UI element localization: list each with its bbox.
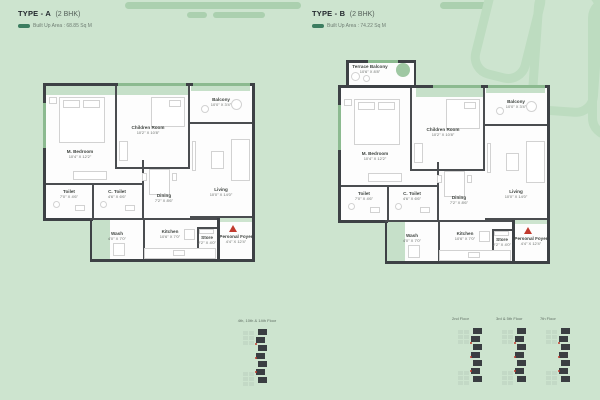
room-label-c-toilet: C. Toilet4'6" X 6'6" [390,191,434,202]
room-label-kitchen: Kitchen10'6" X 7'0" [145,229,195,240]
deco-bar [187,12,207,18]
type-a-title-row: TYPE - A (2 BHK) [18,3,92,21]
room-label-children-room: Children Room10'2" X 10'8" [119,125,177,136]
wc-icon [53,201,60,208]
room-label-balcony: Balcony10'0" X 3'4" [488,99,544,110]
room-label-terrace-balcony: Terrace Balcony10'6" X 8'8" [348,64,392,75]
area-dash-icon [18,24,30,28]
tower-diagram [243,326,271,394]
type-b-title-row: TYPE - B (2 BHK) [312,3,386,21]
keyplan-3: 3rd & 5th Floor [496,316,536,398]
type-a-config: (2 BHK) [55,11,80,18]
sink-icon [173,250,185,256]
planter-icon [396,63,410,77]
keyplan-1: 4th, 10th & 14th Floor [228,318,286,398]
sink-icon [468,252,480,258]
room-label-wash: Wash4'0" X 7'0" [94,231,140,242]
washer-icon [113,243,125,256]
basin-icon [75,205,85,211]
room-label-children-room: Children Room10'2" X 10'8" [414,127,472,138]
floor-plan-type-a: M. Bedroom10'4" X 12'2" Children Room10'… [43,83,257,265]
keyplan-2: 2nd Floor [452,316,492,398]
type-a-title: TYPE - A [18,9,51,18]
chair-icon [363,75,370,82]
type-a-header: TYPE - A (2 BHK) Built Up Area : 68.85 S… [18,3,92,29]
room-label-living: Living10'0" X 14'0" [490,189,542,200]
wc-icon [100,201,107,208]
wardrobe-icon [73,171,107,180]
tower-diagram [546,325,574,393]
entry-arrow-icon [524,227,532,234]
dining-table-icon [149,169,170,195]
wardrobe-icon [368,173,402,182]
washer-icon [408,245,420,258]
basin-icon [420,207,430,213]
deco-bar [125,2,301,9]
room-label-dining: Dining7'2" X 8'6" [436,195,482,206]
room-label-personal-foyer: Personal Foyer4'4" X 12'4" [513,236,549,247]
room-label-kitchen: Kitchen10'6" X 7'0" [440,231,490,242]
deco-bar [440,2,488,9]
deco-bar [213,12,265,18]
room-label-living: Living10'0" X 14'0" [195,187,247,198]
type-a-area: Built Up Area : 68.85 Sq M [33,23,92,29]
area-dash-icon [312,24,324,28]
keyplan-title: 7th Floor [540,316,580,321]
room-label-personal-foyer: Personal Foyer4'4" X 12'4" [218,234,254,245]
basin-icon [370,207,380,213]
room-label-c-toilet: C. Toilet4'6" X 6'6" [95,189,139,200]
wc-icon [395,203,402,210]
tv-unit-icon [487,143,491,173]
wc-icon [348,203,355,210]
room-label-toilet: Toilet7'0" X 4'6" [49,189,89,200]
keyplan-title: 2nd Floor [452,316,492,321]
room-label-store: Store2'2" X 4'0" [490,237,514,248]
room-label-balcony: Balcony10'0" X 3'4" [193,97,249,108]
keyplan-title: 4th, 10th & 14th Floor [228,318,286,323]
tower-diagram [458,325,486,393]
room-label-store: Store2'2" X 4'0" [195,235,219,246]
sofa-icon [526,141,545,183]
type-b-config: (2 BHK) [350,11,375,18]
tv-unit-icon [192,141,196,171]
room-label-wash: Wash4'0" X 7'0" [389,233,435,244]
entry-arrow-icon [229,225,237,232]
room-label-toilet: Toilet7'0" X 4'6" [344,191,384,202]
room-label-m-bedroom: M. Bedroom10'4" X 12'2" [344,151,406,162]
floor-plan-type-b: Terrace Balcony10'6" X 8'8" [338,60,552,267]
brochure-page: { "header": { "type_a": {"title": "TYPE … [0,0,600,400]
type-b-title: TYPE - B [312,9,345,18]
dining-table-icon [444,171,465,197]
tower-diagram [502,325,530,393]
sofa-icon [231,139,250,181]
room-label-dining: Dining7'2" X 8'6" [141,193,187,204]
keyplan-title: 3rd & 5th Floor [496,316,536,321]
keyplan-4: 7th Floor [540,316,580,398]
basin-icon [125,205,135,211]
type-b-area: Built Up Area : 74.22 Sq M [327,23,386,29]
type-b-header: TYPE - B (2 BHK) Built Up Area : 74.22 S… [312,3,386,29]
room-label-m-bedroom: M. Bedroom10'4" X 12'2" [49,149,111,160]
